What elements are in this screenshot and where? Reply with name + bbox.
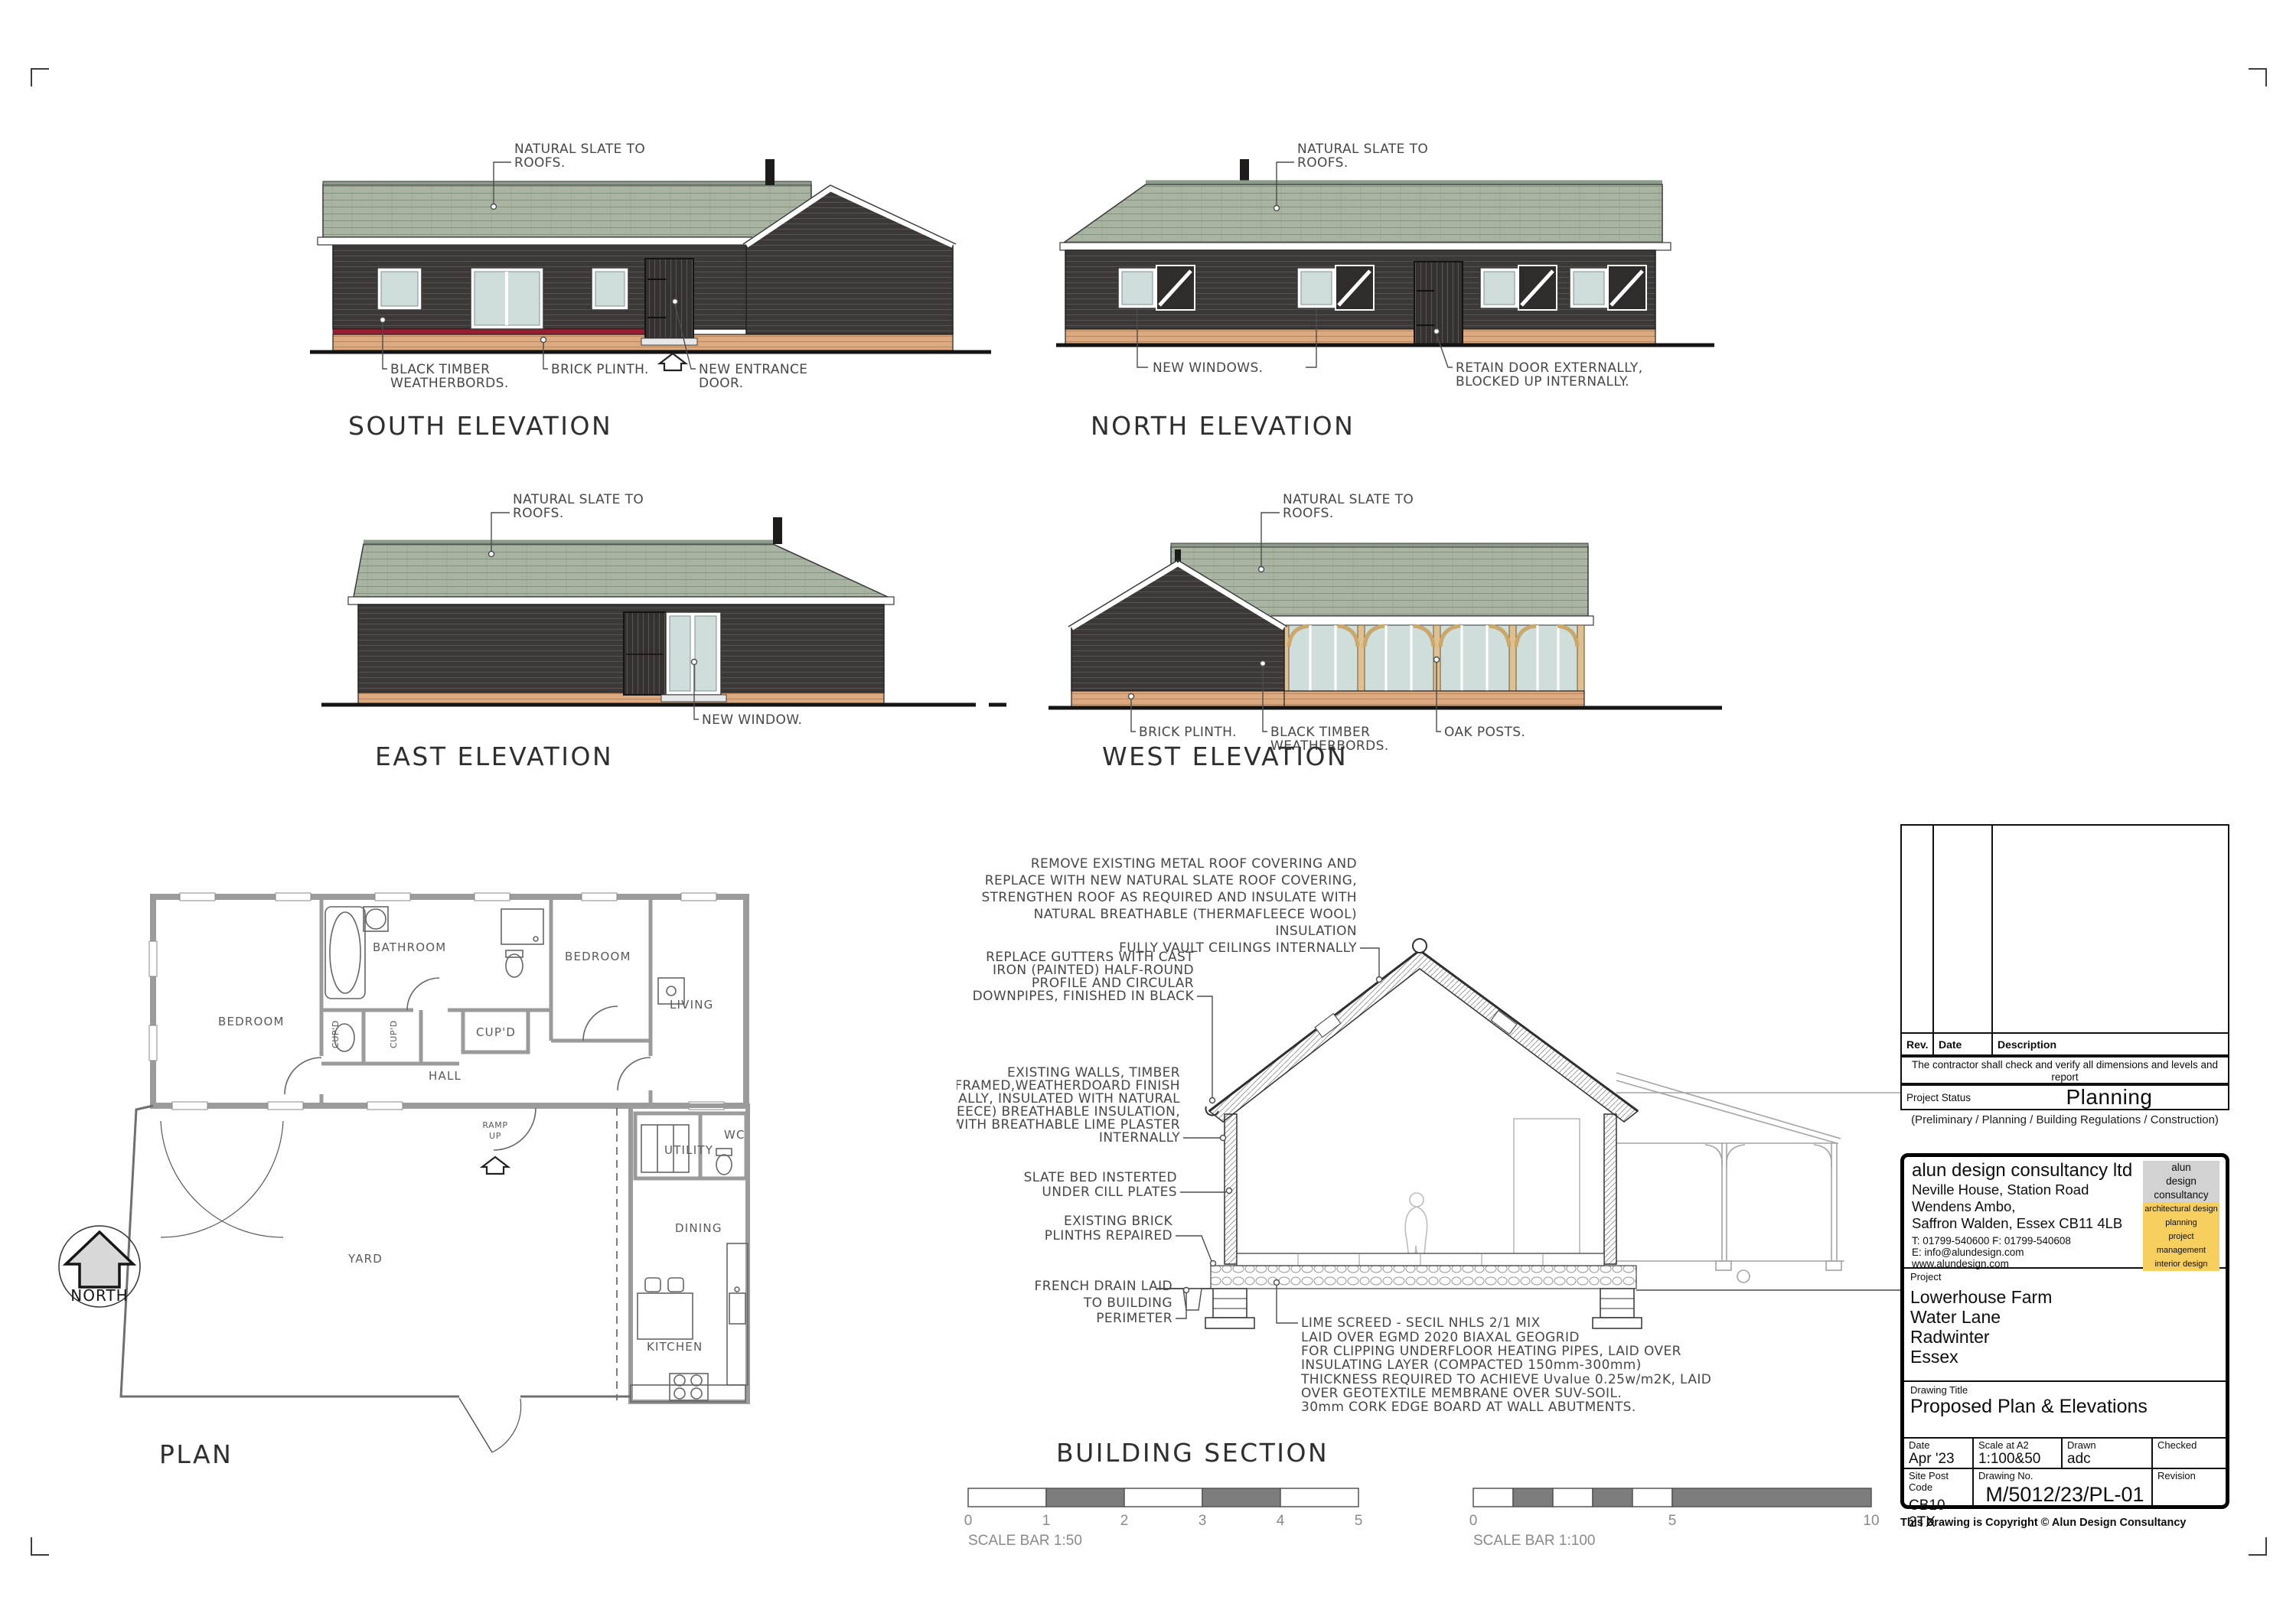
svg-text:RAMP: RAMP — [482, 1120, 507, 1130]
east-elevation-drawing: NATURAL SLATE TO ROOFS. NEW WINDOW. EAST… — [321, 490, 1010, 796]
west-plinth-note: BRICK PLINTH. — [1139, 725, 1237, 740]
svg-text:INSULATION: INSULATION — [1275, 924, 1357, 939]
status-options: (Preliminary / Planning / Building Regul… — [1900, 1113, 2229, 1126]
date-col-header: Date — [1934, 1038, 1993, 1051]
svg-text:4: 4 — [1277, 1513, 1285, 1529]
fields-row-2: Site Post CodeCB10 2TX Drawing No.M/5012… — [1904, 1469, 2226, 1505]
svg-text:UNDER CILL PLATES: UNDER CILL PLATES — [1042, 1185, 1177, 1200]
svg-text:CUP'D: CUP'D — [389, 1020, 399, 1048]
svg-text:DOWNPIPES, FINISHED IN BLACK: DOWNPIPES, FINISHED IN BLACK — [973, 989, 1195, 1004]
entrance-arrow-icon — [660, 354, 686, 370]
section-drain-note: FRENCH DRAIN LAID — [1035, 1279, 1172, 1294]
north-window-4 — [1570, 266, 1646, 310]
svg-text:THICKNESS REQUIRED TO ACHIEVE: THICKNESS REQUIRED TO ACHIEVE Uvalue 0.2… — [1300, 1372, 1711, 1387]
north-roof-note: NATURAL SLATE TO — [1297, 142, 1428, 157]
drawing-title-section: Drawing Title Proposed Plan & Elevations — [1904, 1382, 2226, 1439]
date-value: Apr '23 — [1909, 1451, 1972, 1468]
svg-text:DOOR.: DOOR. — [699, 376, 743, 391]
company-section: alun design consultancy ltd Neville Hous… — [1904, 1157, 2226, 1269]
svg-text:10: 10 — [1863, 1513, 1879, 1529]
contractor-note: The contractor shall check and verify al… — [1900, 1056, 2229, 1084]
drawing-number-value: M/5012/23/PL-01 — [1978, 1481, 2151, 1507]
svg-text:INSULATING LAYER (COMPACTED 15: INSULATING LAYER (COMPACTED 150mm-300mm) — [1301, 1357, 1642, 1373]
svg-text:LAID OVER EGMD 2020 BIAXAL GEO: LAID OVER EGMD 2020 BIAXAL GEOGRID — [1301, 1330, 1580, 1345]
svg-text:OVER GEOTEXTILE MEMBRANE OVER: OVER GEOTEXTILE MEMBRANE OVER SUV-SOIL. — [1301, 1386, 1622, 1401]
title-block-main: alun design consultancy ltd Neville Hous… — [1900, 1153, 2229, 1509]
svg-text:BLOCKED UP INTERNALLY.: BLOCKED UP INTERNALLY. — [1456, 374, 1629, 389]
south-roof-note: NATURAL SLATE TO — [514, 142, 645, 157]
room-label-utility: UTILITY — [664, 1143, 713, 1157]
scale-bar-1-50: 0 1 2 3 4 5 SCALE BAR 1:50 — [960, 1481, 1420, 1553]
svg-text:ROOFS.: ROOFS. — [1283, 506, 1334, 521]
south-window-2 — [471, 268, 543, 329]
drawing-title-value: Proposed Plan & Elevations — [1904, 1396, 2226, 1418]
copyright-note: This Drawing is Copyright © Alun Design … — [1900, 1517, 2237, 1529]
corner-mark-top-right — [2249, 68, 2267, 86]
project-section: Project Lowerhouse Farm Water Lane Radwi… — [1904, 1269, 2226, 1382]
west-roof-note: NATURAL SLATE TO — [1283, 492, 1414, 507]
room-label-bedroom1: BEDROOM — [218, 1015, 285, 1028]
north-window-3 — [1480, 266, 1557, 310]
svg-text:ROOFS.: ROOFS. — [514, 155, 566, 171]
floor-plan-drawing: BEDROOM BATHROOM BEDROOM LIVING CUP'D CU… — [46, 865, 857, 1553]
building-section-drawing: REMOVE EXISTING METAL ROOF COVERING AND … — [957, 834, 1910, 1492]
scale-bar-100-label: SCALE BAR 1:100 — [1473, 1533, 1595, 1549]
east-elevation-title: EAST ELEVATION — [375, 741, 613, 771]
south-plinth-note: BRICK PLINTH. — [551, 362, 649, 377]
south-building — [310, 159, 991, 370]
svg-text:ROOFS.: ROOFS. — [513, 506, 564, 521]
section-plinths-note: EXISTING BRICK — [1064, 1214, 1172, 1229]
svg-text:NATURAL BREATHABLE (THERMAFLEE: NATURAL BREATHABLE (THERMAFLEECE WOOL) — [1034, 907, 1357, 922]
south-entrance-door — [641, 259, 697, 345]
svg-text:3: 3 — [1199, 1513, 1207, 1529]
west-timber-note: BLACK TIMBER — [1270, 725, 1370, 740]
plan-room-labels: BEDROOM BATHROOM BEDROOM LIVING CUP'D CU… — [218, 940, 745, 1354]
corner-mark-top-left — [31, 68, 49, 86]
project-line-1: Lowerhouse Farm — [1904, 1282, 2226, 1307]
east-window-note: NEW WINDOW. — [702, 712, 802, 728]
svg-text:2: 2 — [1120, 1513, 1129, 1529]
svg-text:WEATHERBORDS.: WEATHERBORDS. — [390, 376, 509, 391]
north-elevation-drawing: NATURAL SLATE TO ROOFS. NEW WINDOWS. RET… — [1056, 138, 1760, 444]
north-building — [1056, 159, 1714, 345]
scale-value: 1:100&50 — [1978, 1451, 2061, 1468]
room-label-hall: HALL — [429, 1069, 461, 1083]
rev-col-header: Rev. — [1902, 1038, 1934, 1051]
drawing-sheet: NATURAL SLATE TO ROOFS. BLACK TIMBER WEA… — [0, 0, 2296, 1623]
plan-title: PLAN — [159, 1439, 233, 1469]
svg-text:CUP'D: CUP'D — [476, 1025, 516, 1039]
room-label-kitchen: KITCHEN — [647, 1340, 703, 1354]
room-label-wc: WC — [724, 1128, 745, 1142]
svg-text:30mm CORK EDGE BOARD AT WALL A: 30mm CORK EDGE BOARD AT WALL ABUTMENTS. — [1301, 1400, 1636, 1415]
room-label-bedroom2: BEDROOM — [565, 950, 631, 963]
west-posts-note: OAK POSTS. — [1444, 725, 1525, 740]
svg-text:TO BUILDING: TO BUILDING — [1083, 1295, 1172, 1311]
title-block: Rev. Date Description The contractor sha… — [1900, 824, 2232, 1574]
south-elevation-title: SOUTH ELEVATION — [348, 411, 612, 441]
fields-row-1: DateApr '23 Scale at A21:100&50 Drawnadc… — [1904, 1439, 2226, 1469]
project-status-row: Project Status Planning — [1900, 1084, 2229, 1110]
south-window-3 — [592, 268, 628, 310]
drawn-value: adc — [2067, 1451, 2151, 1468]
room-label-dining: DINING — [675, 1221, 722, 1235]
east-door — [624, 612, 666, 695]
svg-text:UP: UP — [489, 1131, 501, 1141]
svg-text:1: 1 — [1042, 1513, 1051, 1529]
scale-bar-1-100: 0 5 10 SCALE BAR 1:100 — [1466, 1481, 1925, 1553]
revision-table: Rev. Date Description — [1900, 824, 2229, 1056]
svg-text:5: 5 — [1355, 1513, 1363, 1529]
svg-text:ROOFS.: ROOFS. — [1297, 155, 1349, 171]
north-door-note: RETAIN DOOR EXTERNALLY, — [1456, 360, 1643, 376]
east-building — [321, 517, 1006, 705]
section-annotations: REMOVE EXISTING METAL ROOF COVERING AND … — [957, 856, 1711, 1468]
svg-text:NORTH: NORTH — [70, 1286, 128, 1305]
section-screed-note: LIME SCREED - SECIL NHLS 2/1 MIX — [1301, 1315, 1541, 1331]
north-elevation-title: NORTH ELEVATION — [1091, 411, 1355, 441]
room-label-living: LIVING — [670, 998, 714, 1012]
east-roof-note: NATURAL SLATE TO — [513, 492, 644, 507]
svg-text:0: 0 — [964, 1513, 973, 1529]
svg-text:FOR CLIPPING UNDERFLOOR HEATIN: FOR CLIPPING UNDERFLOOR HEATING PIPES, L… — [1301, 1344, 1681, 1359]
north-window-1 — [1118, 266, 1195, 310]
room-label-yard: YARD — [347, 1252, 383, 1266]
north-window-2 — [1297, 266, 1374, 310]
project-status-label: Project Status — [1902, 1092, 1991, 1103]
south-window-1 — [377, 268, 422, 310]
project-status-value: Planning — [1991, 1085, 2228, 1110]
room-label-bathroom: BATHROOM — [373, 940, 446, 954]
svg-text:5: 5 — [1668, 1513, 1677, 1529]
svg-text:STRENGTHEN ROOF AS REQUIRED AN: STRENGTHEN ROOF AS REQUIRED AND INSULATE… — [981, 890, 1357, 905]
section-slatebed-note: SLATE BED INSTERTED — [1024, 1170, 1177, 1185]
scale-bar-50-label: SCALE BAR 1:50 — [968, 1533, 1082, 1549]
company-logo: alun design consultancy architectural de… — [2143, 1161, 2219, 1271]
south-door-note: NEW ENTRANCE — [699, 362, 807, 377]
svg-text:0: 0 — [1469, 1513, 1478, 1529]
ramp-arrow-icon — [482, 1157, 508, 1174]
section-roof-note: REMOVE EXISTING METAL ROOF COVERING AND — [1031, 856, 1357, 872]
svg-text:CUP'D: CUP'D — [331, 1020, 341, 1048]
north-windows-note: NEW WINDOWS. — [1153, 360, 1264, 376]
svg-text:PERIMETER: PERIMETER — [1096, 1311, 1172, 1326]
description-col-header: Description — [1993, 1038, 2228, 1051]
west-building — [1049, 543, 1722, 708]
svg-text:INTERNALLY: INTERNALLY — [1099, 1130, 1180, 1146]
section-structure — [1157, 939, 1906, 1328]
corner-mark-bottom-right — [2249, 1537, 2267, 1556]
south-timber-note: BLACK TIMBER — [390, 362, 490, 377]
west-elevation-drawing: NATURAL SLATE TO ROOFS. BRICK PLINTH. BL… — [1049, 490, 1737, 796]
west-elevation-title: WEST ELEVATION — [1102, 741, 1348, 771]
south-elevation-drawing: NATURAL SLATE TO ROOFS. BLACK TIMBER WEA… — [306, 138, 1010, 444]
svg-text:PLINTHS REPAIRED: PLINTHS REPAIRED — [1045, 1228, 1172, 1243]
section-title: BUILDING SECTION — [1056, 1438, 1329, 1468]
svg-text:REPLACE WITH NEW NATURAL SLATE: REPLACE WITH NEW NATURAL SLATE ROOF COVE… — [985, 873, 1357, 888]
